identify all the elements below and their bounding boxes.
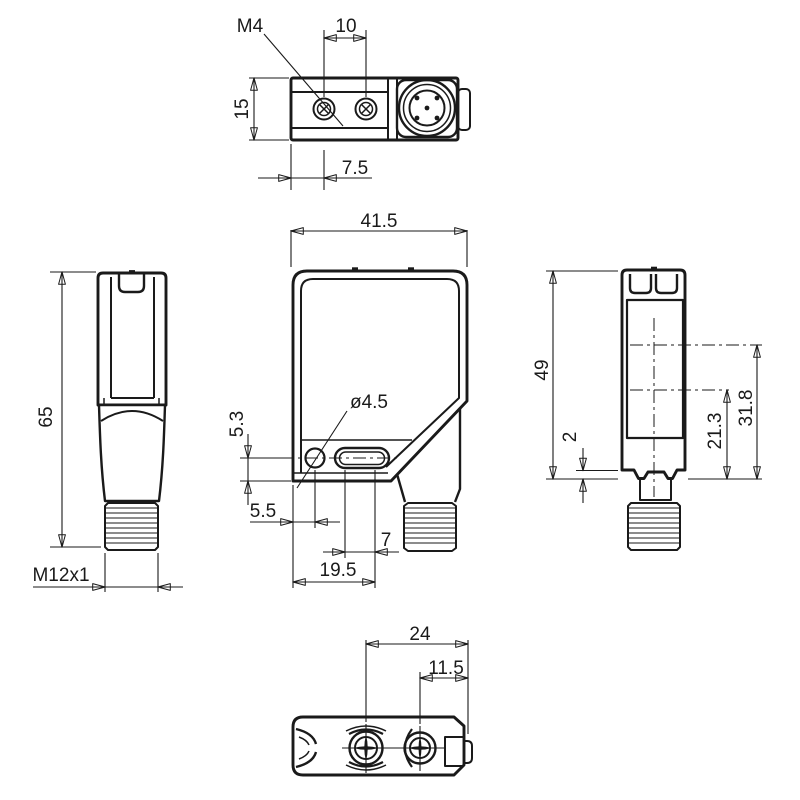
- top-view: [291, 78, 470, 140]
- dimension-drawing-canvas: M4 10 15 7.5: [0, 0, 800, 800]
- dim-label-21-3: 21.3: [705, 413, 726, 450]
- dim-label-31-8: 31.8: [736, 390, 757, 427]
- dim-label-2: 2: [560, 432, 581, 443]
- bottom-view: [293, 717, 472, 775]
- dim-label-10: 10: [335, 16, 356, 37]
- dim-label-65: 65: [36, 406, 57, 427]
- dim-label-11-5: 11.5: [428, 658, 464, 679]
- m12-thread-icon: [404, 503, 456, 551]
- left-side-view: [98, 271, 166, 550]
- dim-label-24: 24: [409, 624, 431, 645]
- bottom-view-housing-outline: [293, 717, 464, 775]
- connector-boot-side: [640, 478, 671, 500]
- dim-label-m12x1: M12x1: [32, 565, 89, 586]
- m12-thread-icon: [628, 503, 680, 550]
- dim-label-15: 15: [232, 98, 253, 119]
- mounting-tab: [458, 89, 470, 130]
- connector-boot-right-edge: [455, 408, 460, 502]
- dim-label-5-5: 5.5: [250, 501, 276, 522]
- connector-boot: [99, 405, 165, 501]
- dim-label-19-5: 19.5: [320, 560, 357, 581]
- dim-label-7: 7: [381, 530, 392, 551]
- dim-label-m4: M4: [237, 16, 264, 37]
- dim-label-41-5: 41.5: [361, 211, 398, 232]
- connector-boot-left-edge: [397, 474, 405, 502]
- dim-label-5-3: 5.3: [227, 411, 248, 437]
- m12-thread-icon: [105, 503, 158, 550]
- dim-label-7-5: 7.5: [342, 158, 368, 179]
- technical-drawing-page: M4 10 15 7.5: [0, 0, 800, 800]
- dim-label-dia-4-5: ø4.5: [350, 392, 388, 413]
- dim-label-49: 49: [532, 359, 553, 380]
